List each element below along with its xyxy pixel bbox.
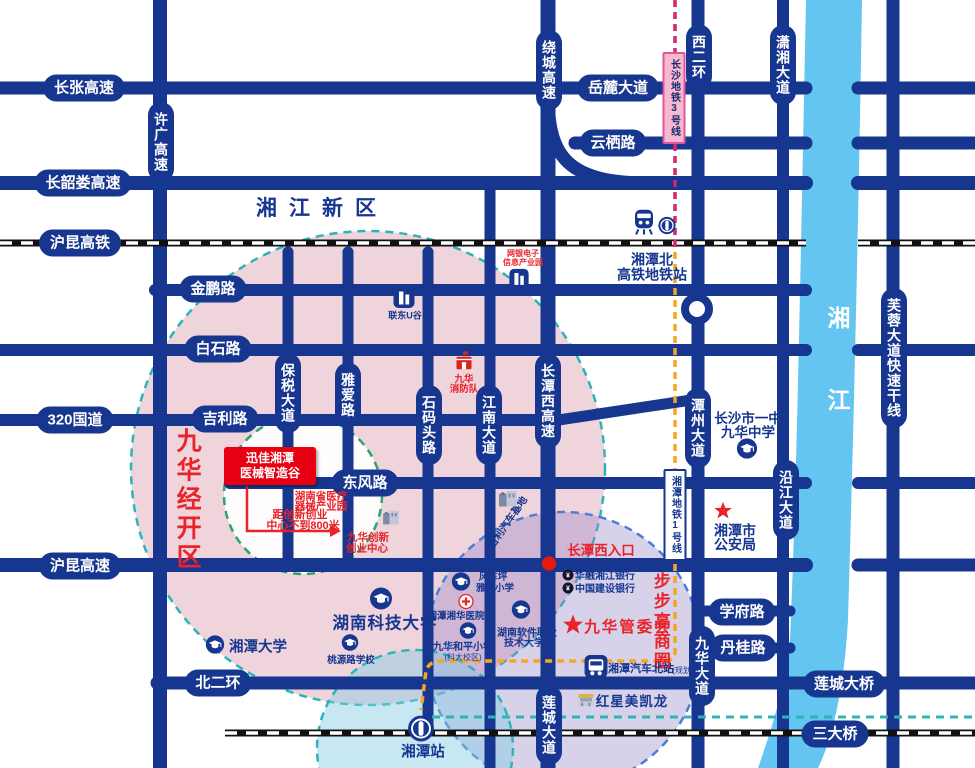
road-tanzhou-ave: 潭州大道 (685, 388, 711, 468)
building-icon (508, 268, 530, 295)
note-line2: 中心不到800米 (266, 521, 339, 533)
star-icon (713, 500, 734, 526)
school-icon (459, 622, 477, 645)
elec-info-park-line2: 信息产业园 (503, 259, 543, 267)
road-furong-ave: 芙蓉大道快速干线 (881, 288, 907, 428)
river-label-xiang: 湘 (828, 306, 851, 330)
fengchePing-school-line2: 雅爱小学 (476, 584, 514, 594)
train-icon (631, 208, 658, 240)
factory-icon (496, 486, 520, 515)
fengchePing-school-line1: 风车坪 (479, 573, 508, 583)
road-changtanxi-expwy: 长潭西高速 (535, 354, 561, 449)
road-hukun-expwy: 沪昆高速 (39, 553, 121, 580)
rail-hukun-hsr: 沪昆高铁 (39, 230, 121, 257)
fire-station-line2: 消防队 (450, 385, 479, 395)
police-bureau-line2: 公安局 (714, 538, 756, 553)
heping-school-line2: (科大校区) (444, 654, 481, 662)
jiuhua-admin: 九华管委会 (584, 620, 672, 636)
factory-icon (381, 506, 402, 532)
entrance-dot (541, 555, 558, 577)
bank-icon: ¥ (562, 581, 574, 599)
school-icon (511, 600, 531, 625)
svg-text:¥: ¥ (566, 573, 570, 580)
metro-line3-label: 长沙地铁3号线 (663, 52, 686, 144)
hospital-icon (458, 594, 474, 615)
xiangtan-north-line1: 湘潭北 (631, 253, 673, 268)
bank-ccb: 中国建设银行 (575, 585, 635, 596)
road-liancheng-ave: 莲城大道 (536, 685, 562, 765)
road-shimatou-rd: 石码头路 (416, 385, 442, 465)
school-icon (341, 634, 359, 657)
road-jiangnan-ave: 江南大道 (476, 385, 502, 465)
road-yaai-rd: 雅爱路 (335, 363, 361, 428)
bus-station-note: (规划中) (672, 667, 701, 675)
bus-icon (584, 654, 609, 684)
bridge-liancheng: 莲城大桥 (803, 671, 885, 698)
road-jili-rd: 吉利路 (191, 406, 258, 433)
project-name-line2: 医械智造谷 (230, 466, 310, 481)
road-yuelu-ave: 岳麓大道 (577, 75, 659, 102)
bus-station-north: 湘潭汽车北站 (608, 664, 674, 676)
area-xiangjiang-new-district: 湘江新区 (256, 198, 388, 220)
road-g320: 320国道 (36, 407, 113, 434)
metro-logo-icon (408, 715, 435, 747)
road-baoshui-ave: 保税大道 (275, 353, 301, 433)
road-xuefu-rd: 学府路 (708, 599, 775, 626)
changtanxi-entrance: 长潭西入口 (567, 544, 635, 558)
road-changshaolou-expwy: 长韶娄高速 (34, 170, 131, 197)
innovation-center-line2: 创业中心 (346, 543, 388, 554)
road-jinpeng-rd: 金鹏路 (179, 276, 246, 303)
software-univ-line2: 技术大学 (504, 639, 544, 650)
road-baishi-rd: 白石路 (184, 336, 251, 363)
road-dangui-rd: 丹桂路 (709, 635, 776, 662)
svg-text:¥: ¥ (566, 586, 570, 593)
road-xiaoxiang-ave: 潇湘大道 (770, 25, 796, 105)
river-label-jiang: 江 (828, 388, 851, 412)
road-beierhuan: 北二环 (184, 670, 251, 697)
bank-huarong: 华融湘江银行 (575, 572, 635, 583)
road-changzhang-expwy: 长张高速 (43, 75, 125, 102)
hongxing-mall: 红星美凯龙 (596, 695, 669, 709)
roundabout (685, 297, 709, 321)
road-xuguang-expwy: 许广高速 (148, 102, 174, 182)
xiangtan-north-line2: 高铁地铁站 (617, 268, 687, 283)
road-yunqi-rd: 云栖路 (579, 130, 646, 157)
map: 长张高速岳麓大道云栖路长韶娄高速沪昆高铁金鹏路白石路320国道吉利路东风路沪昆高… (0, 0, 975, 768)
fire-station-icon (454, 351, 474, 376)
xiangtan-university: 湘潭大学 (229, 640, 287, 655)
school-icon (736, 438, 758, 465)
school-icon (205, 635, 225, 660)
taoyuan-school: 桃源路学校 (327, 656, 375, 666)
area-jiuhua-econ-zone: 九华经开区 (174, 428, 200, 573)
metro-line1-label: 湘潭地铁1号线 (664, 469, 687, 561)
medical-park-line2: 器械产业园 (295, 501, 348, 512)
road-yanjiang-ave: 沿江大道 (773, 460, 799, 540)
school-icon (369, 587, 393, 616)
building-icon (392, 286, 416, 315)
road-xierhuan: 西二环 (686, 25, 712, 90)
hnust-university: 湖南科技大学 (333, 615, 438, 632)
project-site-badge: 迅佳湘潭 医械智造谷 (224, 447, 316, 485)
road-raocheng-expwy: 绕城高速 (536, 30, 562, 110)
star-icon (561, 613, 585, 642)
metro-logo-icon (658, 217, 676, 240)
project-name-line1: 迅佳湘潭 (230, 451, 310, 466)
xiangtan-station: 湘潭站 (401, 745, 445, 760)
mall-icon (577, 690, 596, 714)
bridge-sandaqiao: 三大桥 (801, 721, 868, 748)
